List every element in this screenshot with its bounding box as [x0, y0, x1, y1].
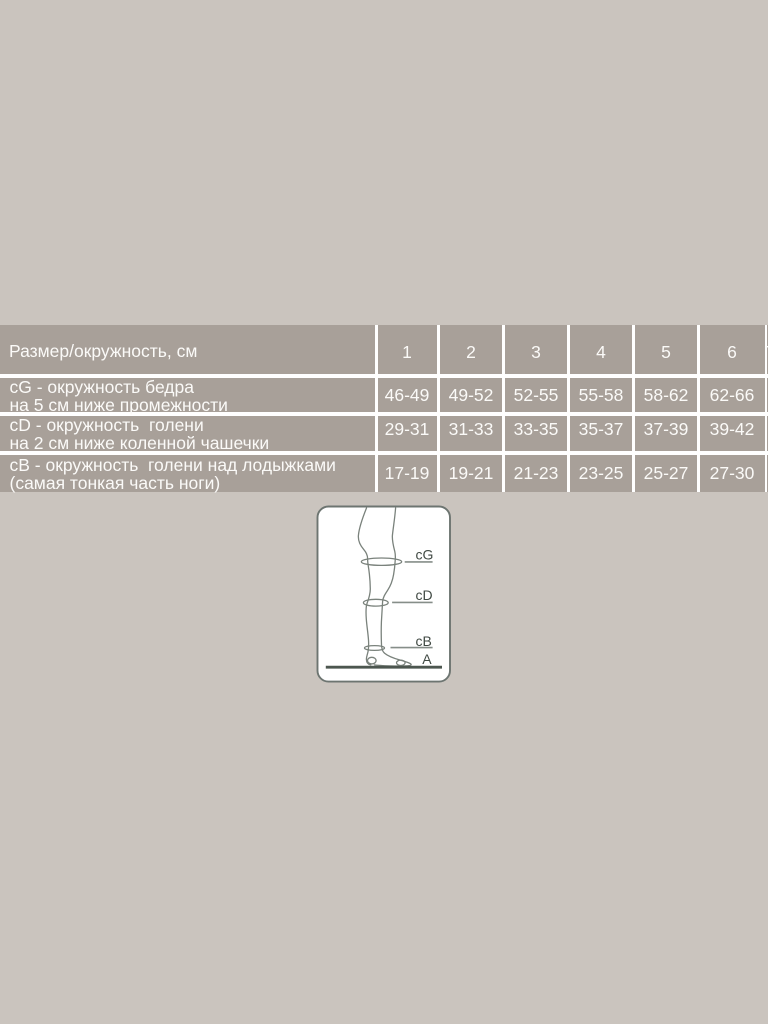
svg-text:cB: cB — [416, 633, 432, 649]
svg-text:A: A — [422, 651, 432, 667]
svg-text:cD: cD — [416, 587, 433, 603]
svg-text:cG: cG — [416, 546, 434, 562]
